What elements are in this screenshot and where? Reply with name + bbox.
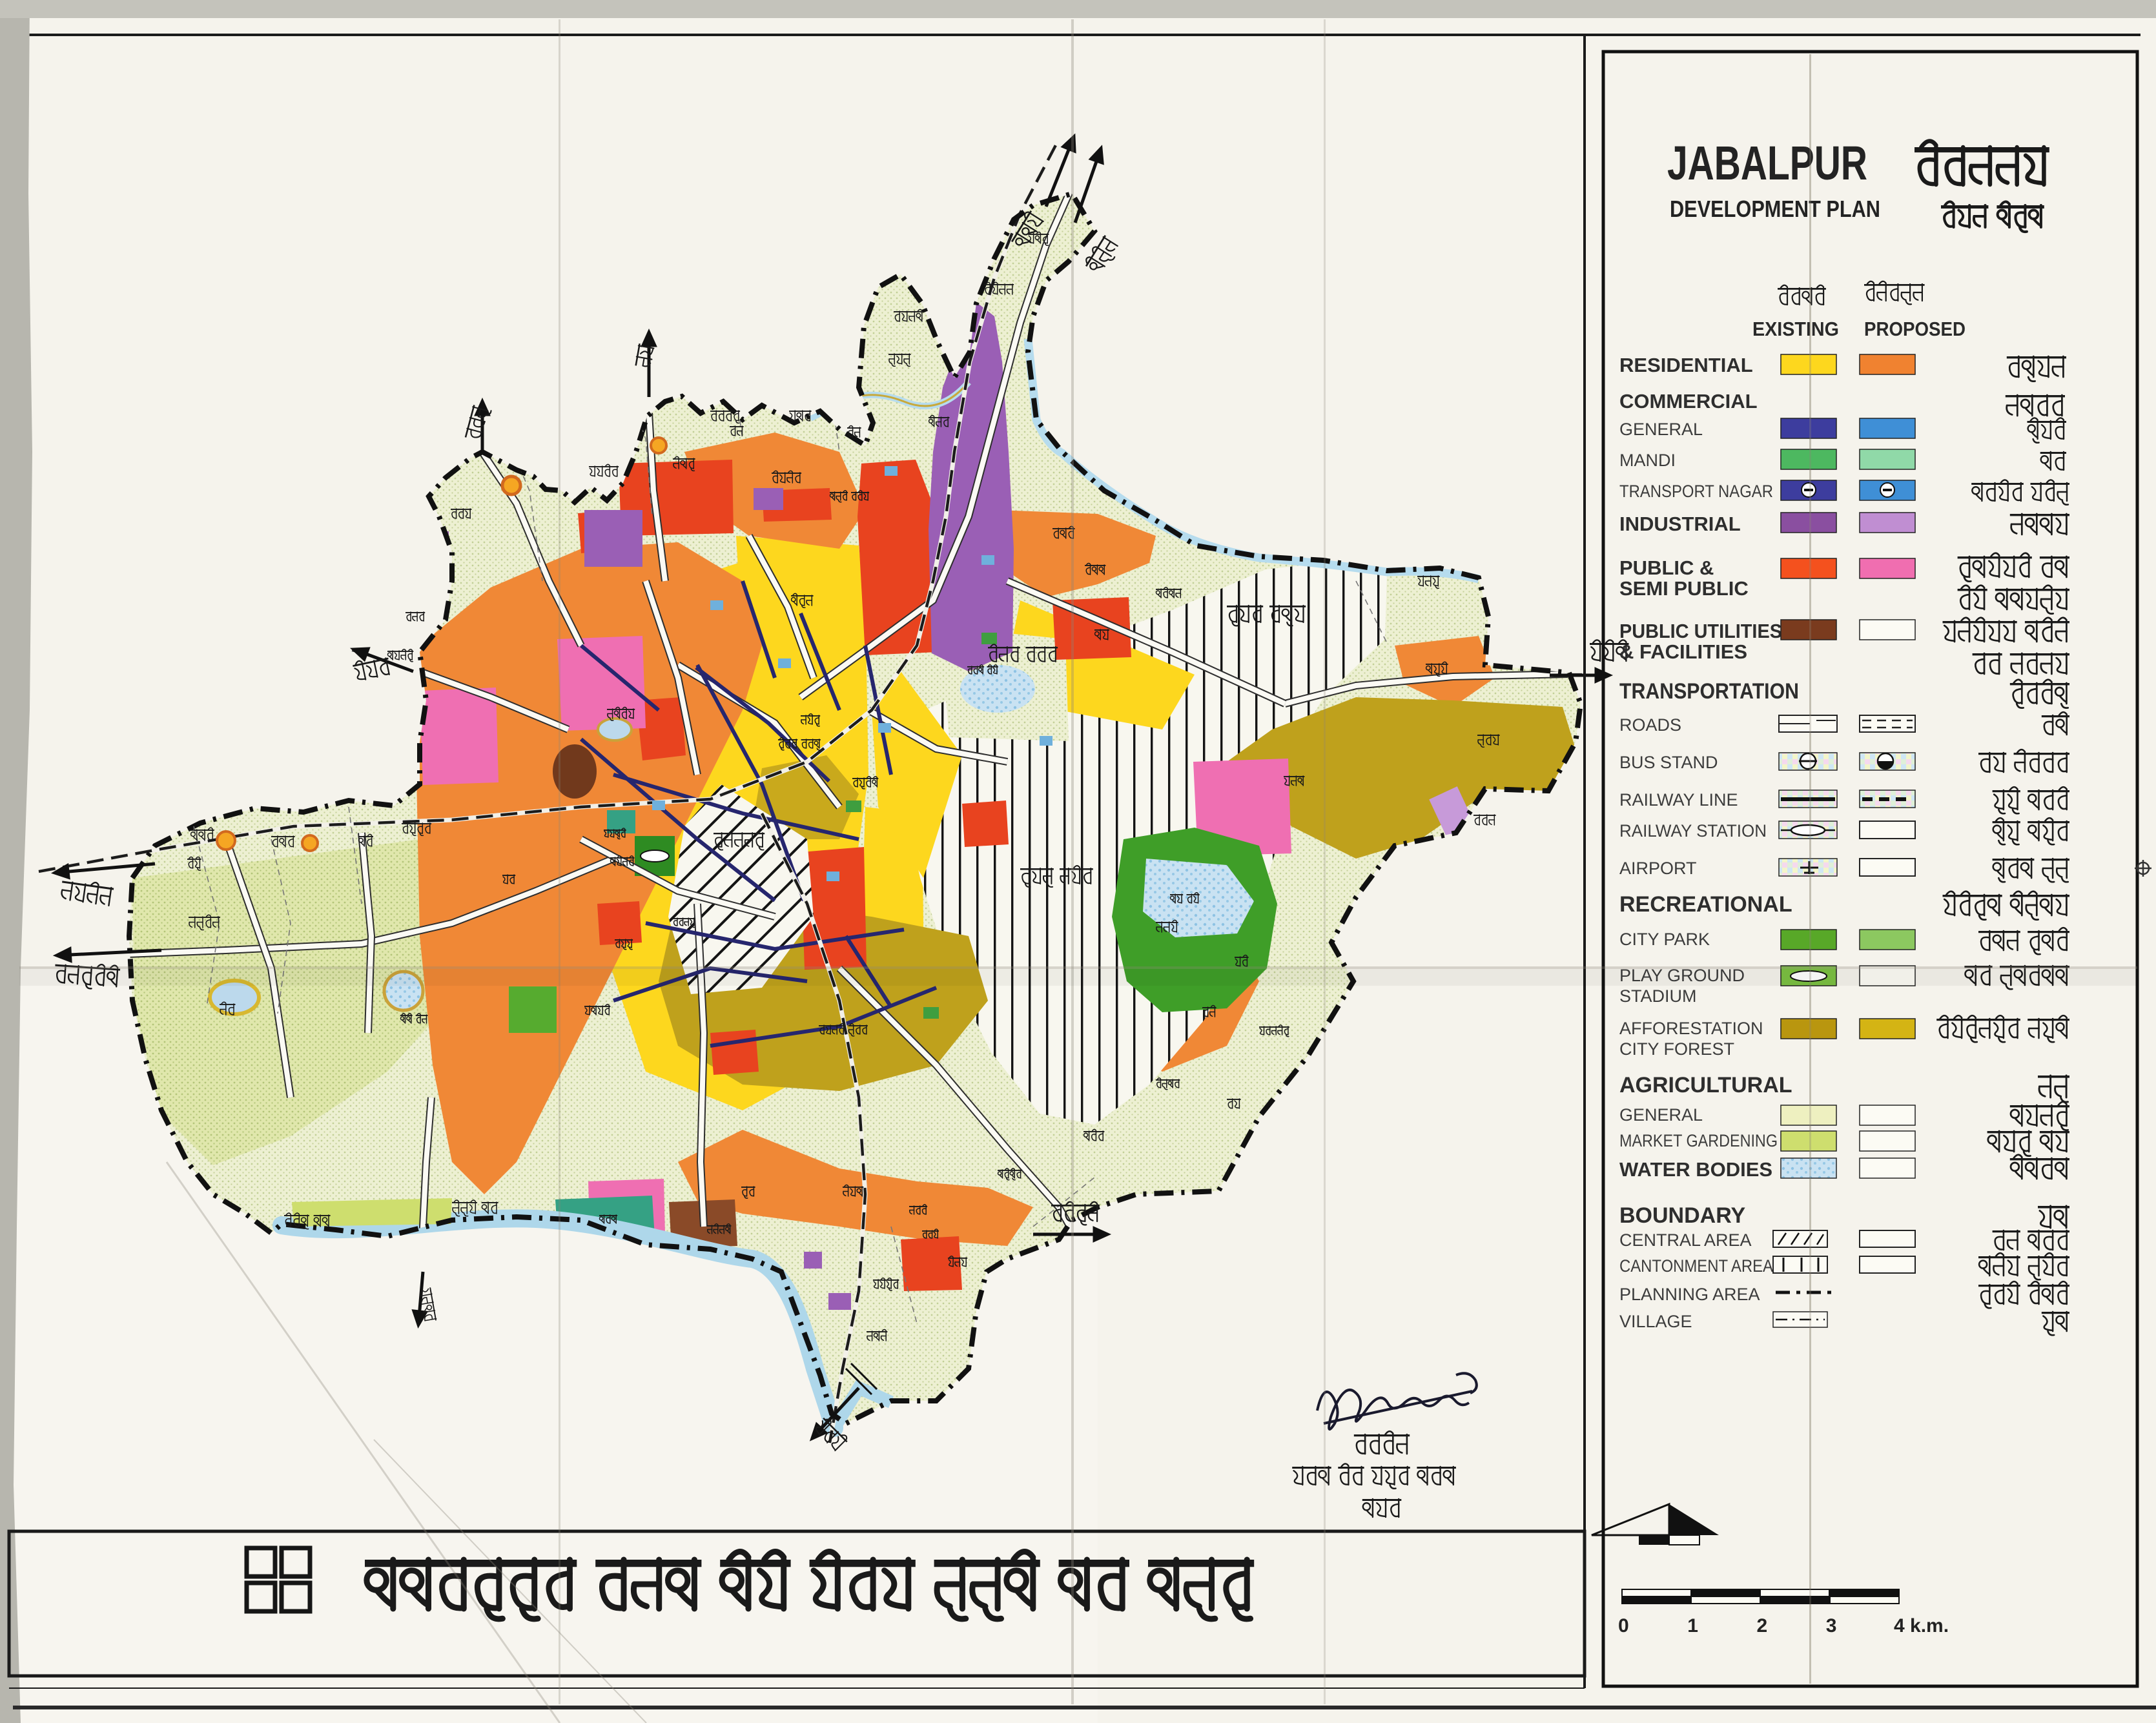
- svg-text:4 k.m.: 4 k.m.: [1894, 1615, 1949, 1636]
- svg-text:RAILWAY LINE: RAILWAY LINE: [1619, 790, 1738, 810]
- svg-text:AIRPORT: AIRPORT: [1619, 859, 1697, 878]
- svg-text:CANTONMENT AREA: CANTONMENT AREA: [1619, 1256, 1773, 1276]
- svg-text:RAILWAY STATION: RAILWAY STATION: [1619, 821, 1767, 841]
- svg-text:3: 3: [1826, 1615, 1837, 1636]
- svg-text:INDUSTRIAL: INDUSTRIAL: [1619, 513, 1741, 535]
- svg-text:PLANNING AREA: PLANNING AREA: [1619, 1285, 1760, 1304]
- svg-text:PUBLIC UTILITIES: PUBLIC UTILITIES: [1619, 620, 1782, 642]
- svg-text:COMMERCIAL: COMMERCIAL: [1619, 390, 1758, 413]
- svg-text:DEVELOPMENT PLAN: DEVELOPMENT PLAN: [1670, 196, 1880, 222]
- svg-text:CITY PARK: CITY PARK: [1619, 930, 1710, 949]
- svg-text:1: 1: [1687, 1615, 1698, 1636]
- svg-text:0: 0: [1618, 1615, 1629, 1636]
- svg-text:RECREATIONAL: RECREATIONAL: [1619, 892, 1792, 917]
- svg-text:EXISTING: EXISTING: [1752, 318, 1839, 340]
- svg-text:AGRICULTURAL: AGRICULTURAL: [1619, 1073, 1792, 1097]
- svg-text:BUS STAND: BUS STAND: [1619, 753, 1718, 772]
- svg-text:BOUNDARY: BOUNDARY: [1619, 1203, 1746, 1228]
- svg-text:PROPOSED: PROPOSED: [1864, 318, 1966, 340]
- svg-text:MARKET GARDENING: MARKET GARDENING: [1619, 1131, 1778, 1150]
- svg-text:RESIDENTIAL: RESIDENTIAL: [1619, 354, 1753, 376]
- svg-text:GENERAL: GENERAL: [1619, 1105, 1703, 1125]
- svg-text:MANDI: MANDI: [1619, 451, 1676, 470]
- svg-text:SEMI PUBLIC: SEMI PUBLIC: [1619, 577, 1749, 600]
- svg-text:VILLAGE: VILLAGE: [1619, 1312, 1692, 1331]
- svg-text:TRANSPORT NAGAR: TRANSPORT NAGAR: [1619, 482, 1773, 501]
- svg-text:JABALPUR: JABALPUR: [1667, 136, 1867, 190]
- svg-text:2: 2: [1757, 1615, 1768, 1636]
- svg-text:& FACILITIES: & FACILITIES: [1619, 640, 1747, 663]
- svg-text:ROADS: ROADS: [1619, 715, 1681, 735]
- svg-text:WATER BODIES: WATER BODIES: [1619, 1158, 1772, 1181]
- svg-text:GENERAL: GENERAL: [1619, 420, 1703, 439]
- svg-text:CITY FOREST: CITY FOREST: [1619, 1039, 1734, 1059]
- svg-text:CENTRAL AREA: CENTRAL AREA: [1619, 1230, 1752, 1250]
- svg-text:STADIUM: STADIUM: [1619, 986, 1697, 1006]
- svg-text:PUBLIC &: PUBLIC &: [1619, 556, 1714, 579]
- svg-text:TRANSPORTATION: TRANSPORTATION: [1619, 679, 1799, 704]
- svg-text:AFFORESTATION: AFFORESTATION: [1619, 1019, 1763, 1038]
